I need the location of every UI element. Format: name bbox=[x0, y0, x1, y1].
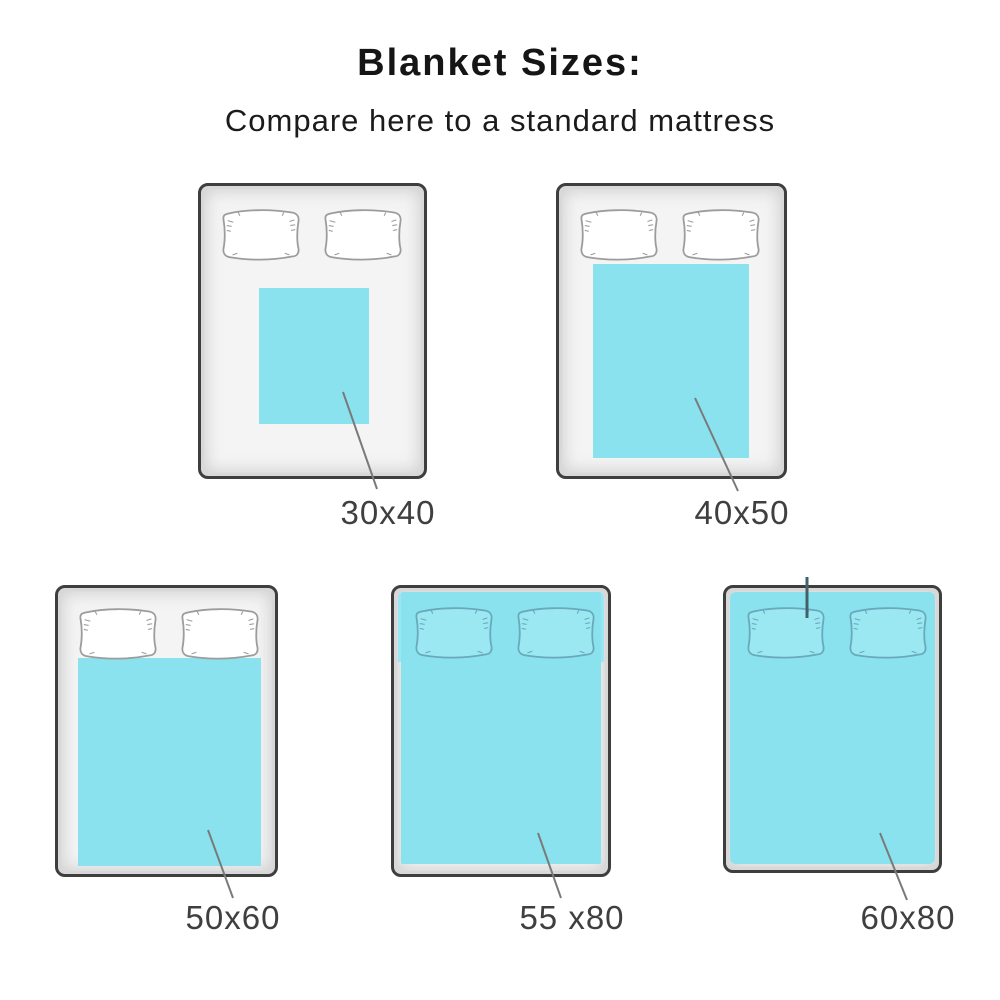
size-label-40x50: 40x50 bbox=[695, 494, 790, 532]
blanket-size-diagram: Blanket Sizes: Compare here to a standar… bbox=[0, 0, 1000, 1000]
pillow-icon bbox=[176, 605, 264, 662]
blanket-50x60 bbox=[78, 658, 261, 866]
pillow-icon bbox=[74, 605, 162, 662]
size-label-50x60: 50x60 bbox=[186, 899, 281, 937]
bed-figure-50x60 bbox=[55, 585, 278, 877]
page-title: Blanket Sizes: bbox=[0, 42, 1000, 85]
pillow-icon bbox=[217, 206, 305, 263]
pillow-icon bbox=[319, 206, 407, 263]
bed-figure-30x40 bbox=[198, 183, 427, 479]
bed-figure-55x80 bbox=[391, 585, 611, 877]
size-label-60x80: 60x80 bbox=[861, 899, 956, 937]
pillow-icon bbox=[410, 604, 498, 661]
blanket-30x40 bbox=[259, 288, 369, 424]
bed-figure-40x50 bbox=[556, 183, 787, 479]
blanket-40x50 bbox=[593, 264, 749, 458]
size-label-30x40: 30x40 bbox=[341, 494, 436, 532]
bed-figure-60x80 bbox=[723, 585, 942, 873]
pillow-icon bbox=[742, 604, 830, 661]
pillow-icon bbox=[677, 206, 765, 263]
page-subtitle: Compare here to a standard mattress bbox=[0, 103, 1000, 139]
pillow-icon bbox=[512, 604, 600, 661]
pillow-icon bbox=[844, 604, 932, 661]
size-label-55x80: 55 x80 bbox=[519, 899, 624, 937]
pillow-icon bbox=[575, 206, 663, 263]
